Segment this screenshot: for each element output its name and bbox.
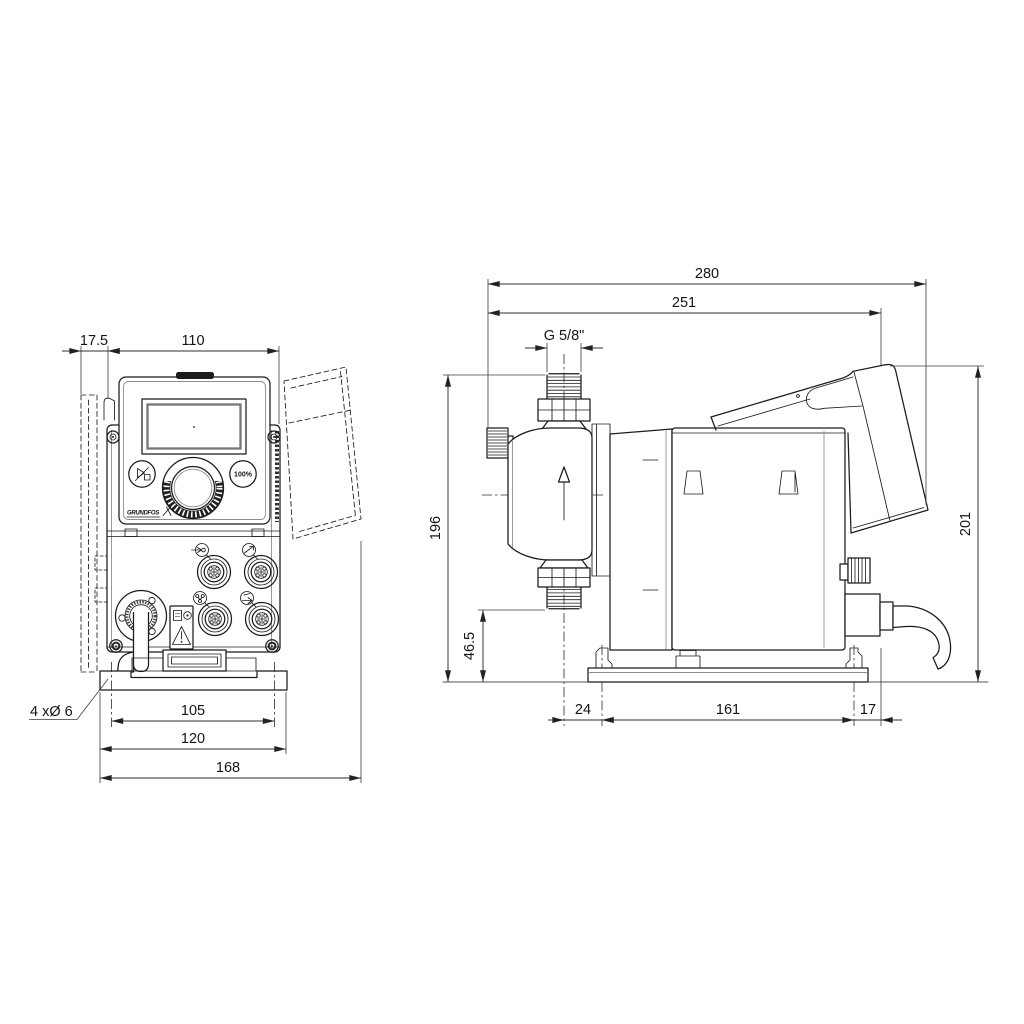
- control-panel: 100% GRUNDFOS: [107, 372, 280, 524]
- dim-base-length-label: 161: [716, 702, 740, 718]
- dim-valve-to-base-label: 24: [575, 702, 591, 718]
- dim-plate-width-label: 120: [181, 731, 205, 747]
- dim-overall-height-label: 201: [958, 512, 974, 536]
- adapter-flange: [610, 429, 672, 650]
- head-flange: [592, 424, 610, 576]
- dim-wall-clearance-label: 17.5: [80, 333, 108, 349]
- cable-elbow: [118, 652, 134, 672]
- dosing-head: [508, 424, 610, 609]
- dim-control-width-label: 110: [181, 333, 204, 349]
- front-view: 100% GRUNDFOS: [29, 333, 361, 783]
- mains-cable: [134, 612, 149, 672]
- hood-handle: [806, 377, 862, 409]
- start-stop-button[interactable]: [129, 461, 155, 487]
- mounting-rail: [132, 650, 256, 671]
- thread-size-label: G 5/8": [544, 328, 585, 344]
- side-view: 280 251 G 5/8" 196 46.5 201 24 161: [428, 266, 988, 726]
- pump-dimensional-drawing: 100% GRUNDFOS: [0, 0, 1024, 1024]
- dim-depth-to-hood-label: 251: [672, 295, 696, 311]
- mounting-clip: [176, 372, 214, 379]
- corner-screw-right: [266, 640, 278, 652]
- display: [142, 399, 246, 454]
- corner-screw-left: [110, 640, 122, 652]
- rear-connection: [840, 558, 951, 669]
- power-cable-gland: [845, 594, 880, 636]
- hood-outline-dashed: [284, 367, 361, 539]
- mounting-plate-side: [588, 648, 868, 682]
- dim-base-to-gland-label: 17: [860, 702, 876, 718]
- motor-housing: [672, 428, 845, 650]
- capacity-button-label: 100%: [234, 472, 253, 479]
- brand-logo-text: GRUNDFOS: [127, 511, 159, 517]
- mains-cable-gland: [116, 591, 167, 673]
- warning-label: [170, 606, 193, 649]
- mounting-holes-note-label: 4 xØ 6: [30, 704, 73, 720]
- power-cable: [893, 606, 951, 669]
- dim-overall-width-label: 168: [216, 760, 240, 776]
- capacity-button[interactable]: 100%: [230, 461, 256, 487]
- dim-suction-height-label: 46.5: [462, 632, 478, 660]
- dim-overall-depth-label: 280: [695, 266, 719, 282]
- dim-connection-height-label: 196: [428, 516, 444, 540]
- display-cursor-dot: [193, 426, 195, 428]
- dim-hole-spacing-label: 105: [181, 703, 205, 719]
